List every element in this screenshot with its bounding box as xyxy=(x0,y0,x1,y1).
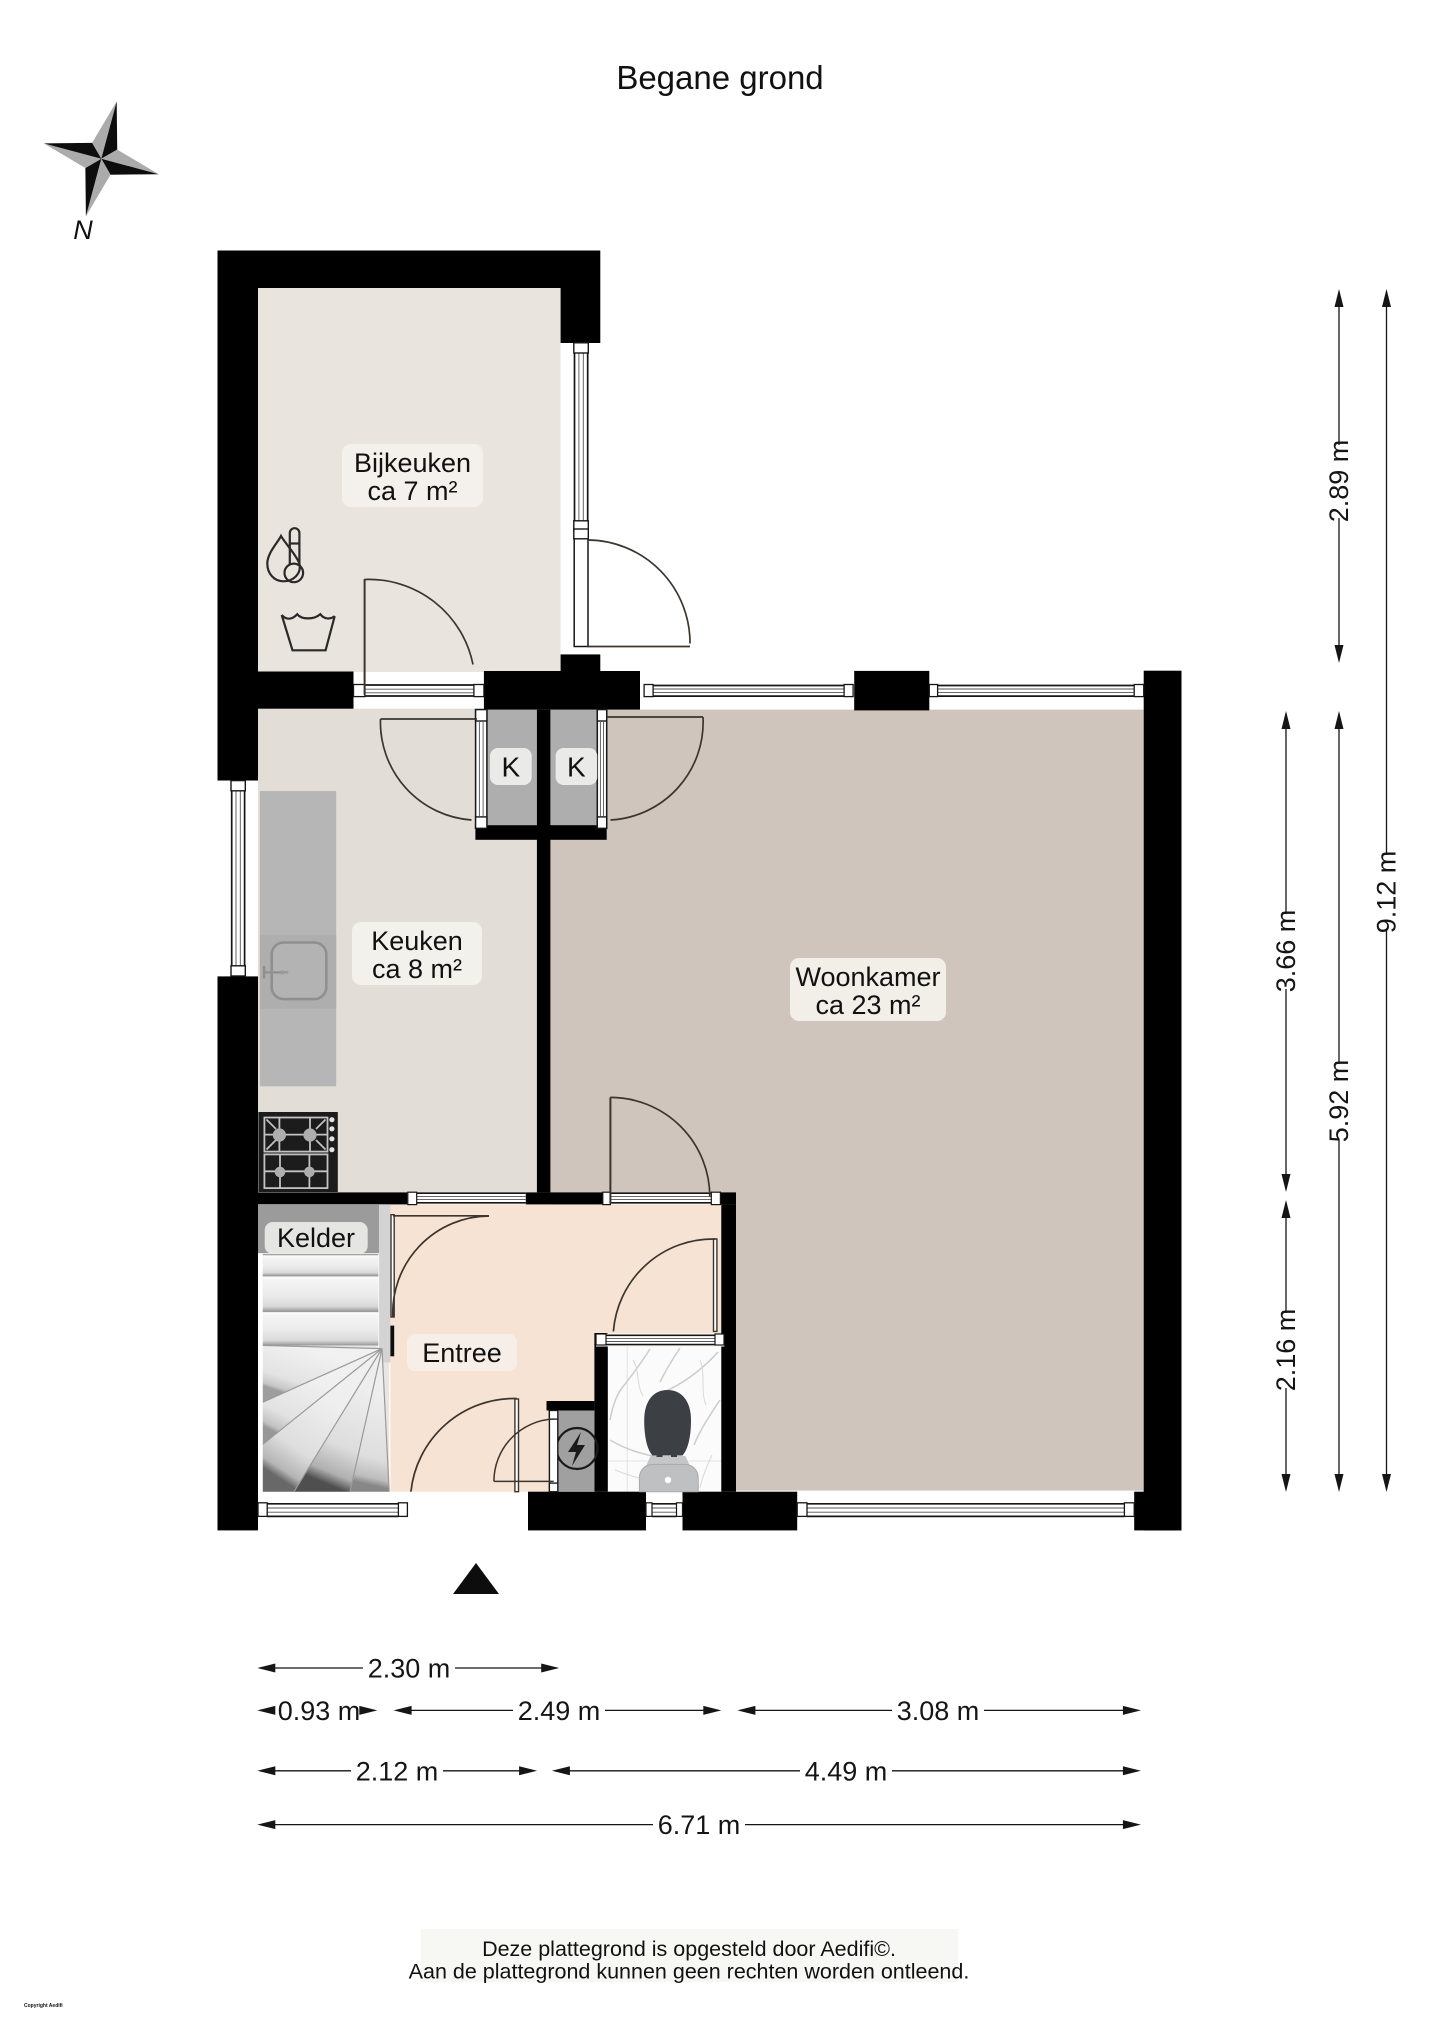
svg-text:Woonkamer: Woonkamer xyxy=(795,962,940,992)
svg-text:Entree: Entree xyxy=(422,1338,502,1368)
svg-text:2.49 m: 2.49 m xyxy=(518,1696,601,1726)
svg-text:4.49 m: 4.49 m xyxy=(805,1756,888,1786)
svg-text:Aan de plattegrond kunnen geen: Aan de plattegrond kunnen geen rechten w… xyxy=(409,1960,970,1984)
svg-text:Deze plattegrond is opgesteld: Deze plattegrond is opgesteld door Aedif… xyxy=(482,1937,896,1961)
svg-text:ca 8 m²: ca 8 m² xyxy=(372,954,462,984)
svg-text:0.93 m: 0.93 m xyxy=(278,1696,361,1726)
svg-text:6.71 m: 6.71 m xyxy=(658,1810,741,1840)
svg-text:K: K xyxy=(567,752,586,783)
svg-text:5.92 m: 5.92 m xyxy=(1324,1060,1354,1143)
svg-text:9.12 m: 9.12 m xyxy=(1372,851,1402,934)
svg-text:2.16 m: 2.16 m xyxy=(1271,1309,1301,1392)
svg-text:ca 23 m²: ca 23 m² xyxy=(815,990,920,1020)
svg-text:Kelder: Kelder xyxy=(277,1223,355,1253)
svg-text:ca 7 m²: ca 7 m² xyxy=(367,476,457,506)
svg-text:2.12 m: 2.12 m xyxy=(356,1756,439,1786)
svg-text:3.66 m: 3.66 m xyxy=(1271,910,1301,993)
svg-text:3.08 m: 3.08 m xyxy=(897,1696,980,1726)
svg-text:Copyright Aedifi: Copyright Aedifi xyxy=(24,2003,63,2009)
svg-text:Begane grond: Begane grond xyxy=(616,59,823,96)
svg-text:2.30 m: 2.30 m xyxy=(368,1654,451,1684)
svg-text:N: N xyxy=(73,215,93,245)
svg-text:Bijkeuken: Bijkeuken xyxy=(354,448,471,478)
svg-text:Keuken: Keuken xyxy=(371,926,463,956)
svg-text:2.89 m: 2.89 m xyxy=(1324,440,1354,523)
svg-text:K: K xyxy=(501,752,520,783)
